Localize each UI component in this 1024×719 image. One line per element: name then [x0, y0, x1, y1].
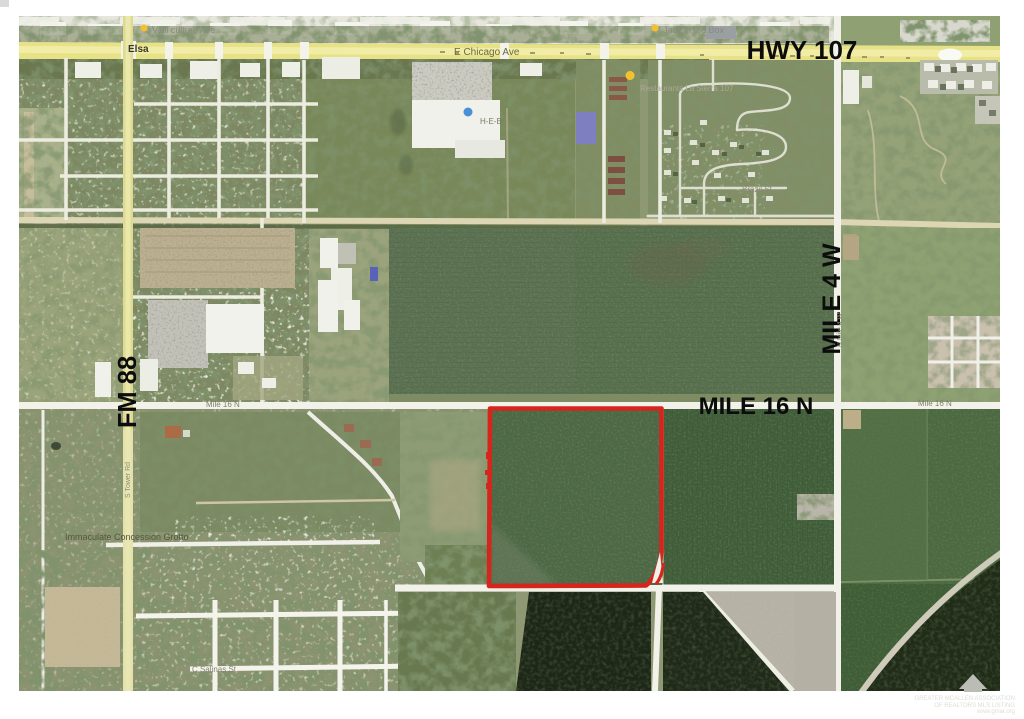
- svg-text:Jack in the Box: Jack in the Box: [663, 25, 725, 35]
- svg-text:FM 88: FM 88: [114, 356, 142, 428]
- svg-text:MILE 16 N: MILE 16 N: [699, 393, 814, 420]
- svg-text:N Mile 4 W: N Mile 4 W: [837, 313, 844, 348]
- svg-text:GREATER MCALLEN ASSOCIATION: GREATER MCALLEN ASSOCIATION: [915, 696, 1015, 702]
- svg-text:Mile 16 N: Mile 16 N: [918, 399, 952, 408]
- svg-text:H-E-B: H-E-B: [480, 117, 502, 126]
- svg-text:S Tower Rd: S Tower Rd: [125, 462, 132, 498]
- svg-text:Brazil St: Brazil St: [742, 185, 773, 194]
- svg-text:Mile 16 N: Mile 16 N: [206, 400, 240, 409]
- svg-text:HWY 107: HWY 107: [747, 35, 858, 65]
- svg-text:www.gmar.org: www.gmar.org: [976, 709, 1015, 715]
- svg-text:Immaculate Concession Grotto: Immaculate Concession Grotto: [65, 532, 189, 542]
- svg-text:Valli culture Ave: Valli culture Ave: [152, 25, 215, 35]
- svg-text:Elsa: Elsa: [128, 44, 149, 55]
- svg-text:C Salinas St: C Salinas St: [192, 665, 237, 674]
- svg-text:Restaurants La Sierra 107: Restaurants La Sierra 107: [640, 84, 734, 93]
- svg-text:E Chicago Ave: E Chicago Ave: [454, 47, 520, 58]
